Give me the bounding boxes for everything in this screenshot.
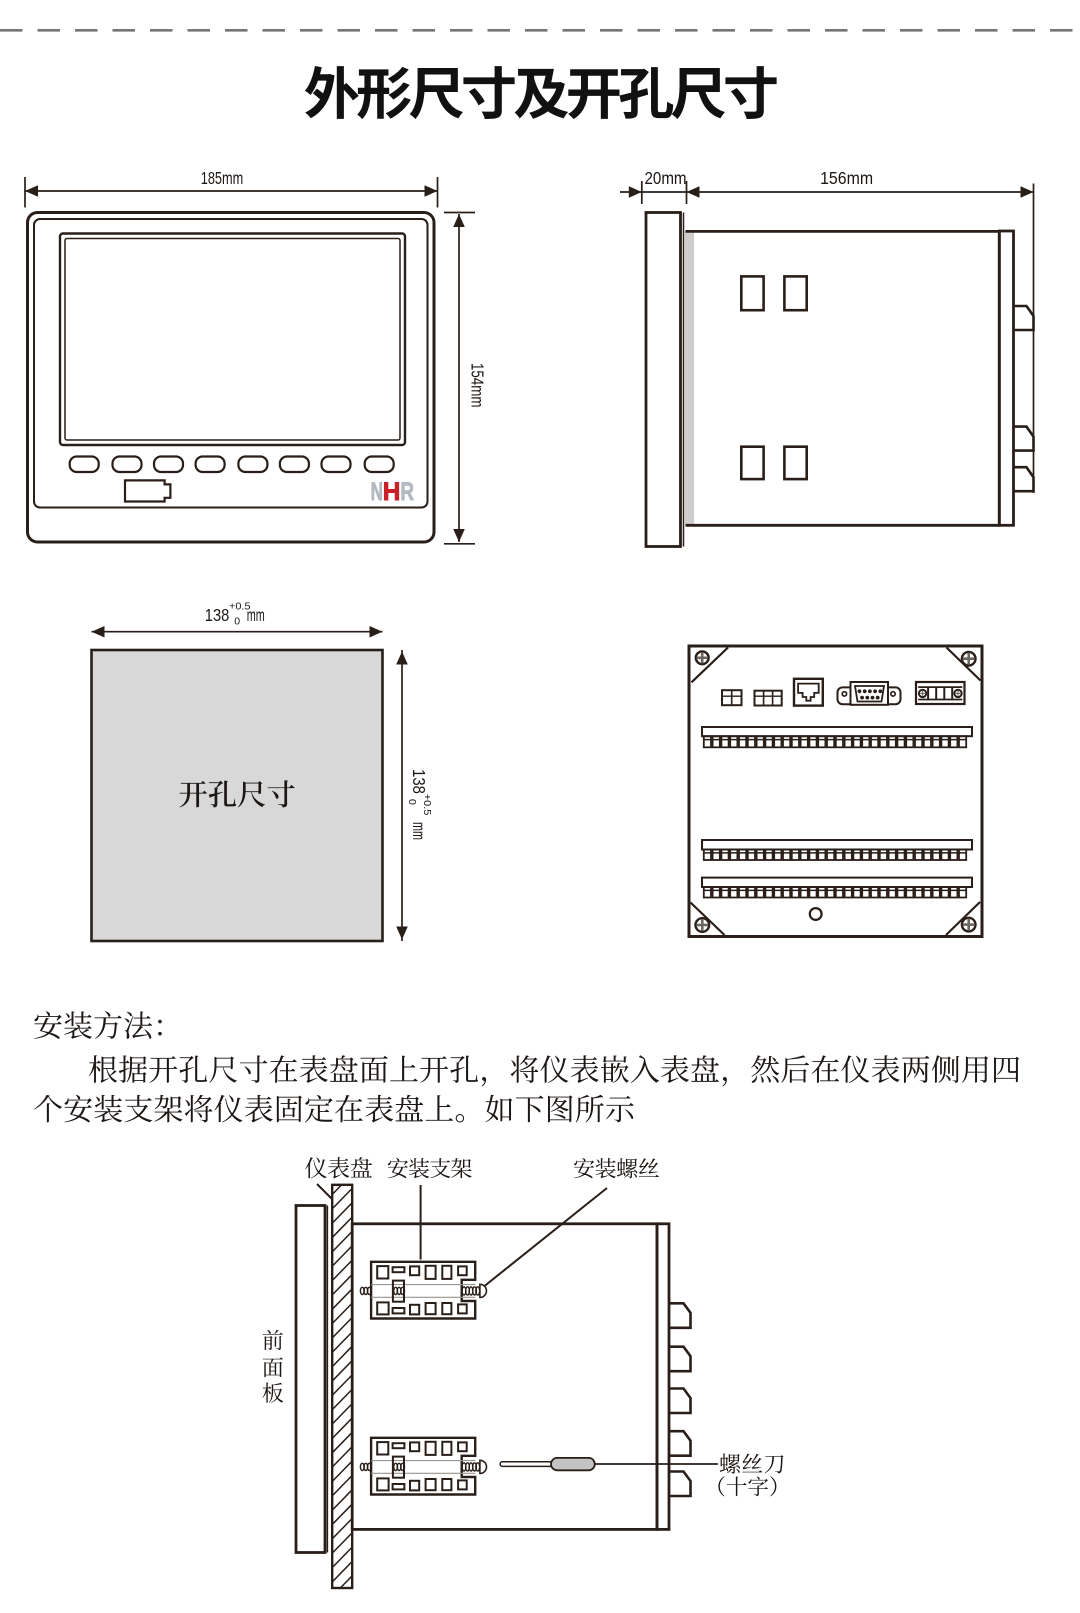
svg-text:0: 0: [234, 615, 240, 627]
svg-text:185mm: 185mm: [201, 168, 244, 188]
svg-text:N: N: [371, 478, 383, 506]
svg-text:R: R: [400, 478, 414, 506]
svg-text:138: 138: [205, 605, 230, 625]
svg-text:+0.5: +0.5: [421, 794, 433, 816]
svg-text:154mm: 154mm: [468, 363, 488, 408]
svg-text:20mm: 20mm: [645, 168, 687, 188]
svg-text:mm: mm: [247, 605, 265, 625]
svg-text:mm: mm: [409, 822, 429, 840]
svg-text:H: H: [383, 478, 401, 506]
svg-text:138: 138: [409, 769, 429, 794]
svg-text:0: 0: [406, 799, 418, 805]
svg-text:156mm: 156mm: [820, 168, 873, 188]
